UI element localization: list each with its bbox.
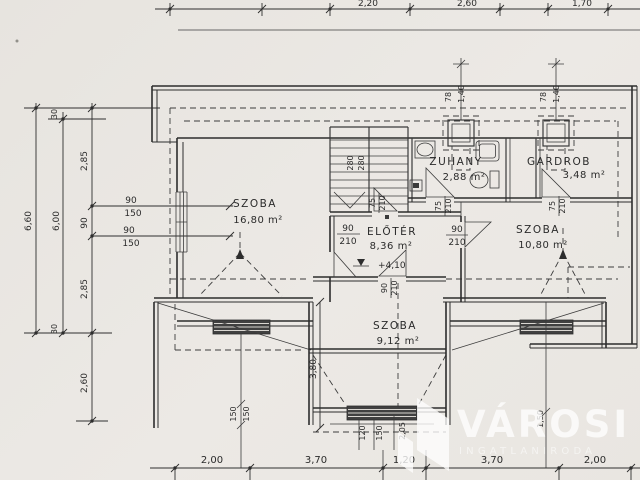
room-name-szoba-ne: SZOBA [516,224,560,236]
room-name-gardrob: GARDROB [527,156,591,168]
door-landing-height: 210 [378,195,387,210]
left-segment2-dim: 2,85 [80,279,90,299]
room-name-zuhany: ZUHANY [429,156,482,168]
south-window-right [520,320,573,334]
door-landing-width: 75 [368,198,377,208]
floor-plan-scan: 2,20 2,60 1,70 78 1,40 78 1,40 6,60 6,00… [0,0,640,480]
room-name-szoba-s: SZOBA [373,320,417,332]
bay-window-dim2: 150 [375,425,384,440]
chimney2-height-label: 1,40 [552,85,561,103]
room-area-gardrob: 3,48 m² [563,170,606,181]
sink-basin [417,143,433,156]
door-east-height: 210 [448,238,465,248]
chimney2-width-label: 78 [539,92,548,102]
left-inner-dim: 6,00 [52,211,62,231]
west-window1-width: 90 [125,196,137,206]
top-dimension-line: 2,20 2,60 1,70 [155,0,640,30]
chimney1-width-label: 78 [444,92,453,102]
room-name-eloter: ELŐTÉR [367,224,417,238]
left-dim-ticks [32,104,234,425]
threshold-mark [385,215,389,219]
left-middle-dim: 90 [80,217,90,229]
top-dim-ticks [166,3,612,16]
watermark-title: VÁROSI [457,402,630,446]
room-labels: SZOBA 16,80 m² ZUHANY 2,88 m² GARDROB 3,… [233,156,605,347]
slope-arrowhead-left [236,249,244,259]
left-below-dim: 2,60 [80,373,90,393]
bottom-dim-2: 3,70 [305,455,327,466]
toilet-cistern [490,171,499,188]
bottom-dim-1: 2,00 [201,455,223,466]
room-name-szoba-nw: SZOBA [233,198,277,210]
left-offset-bottom-dim: 30 [50,324,59,334]
door-zuhany-width: 75 [434,201,443,211]
bay-window-dim1: 120 [358,425,367,440]
hall-east-door-leaf [465,222,491,247]
room-area-zuhany: 2,88 m² [443,172,486,183]
chimney1-height-label: 1,40 [457,85,466,103]
room-area-szoba-s: 9,12 m² [377,336,420,347]
floor-plan-drawing: 2,20 2,60 1,70 78 1,40 78 1,40 6,60 6,00… [0,0,640,480]
stair-dim-b: 280 [357,155,366,170]
scan-speck [16,40,19,43]
door-zuhany-height: 210 [444,198,453,213]
bay-depth-dim: 3,80 [309,359,319,379]
watermark-subtitle: INGATLANIRODA [459,446,596,457]
west-window1-height: 150 [124,209,141,219]
level-marker-value: +4,10 [378,261,406,271]
west-window2-height: 150 [122,239,139,249]
south-window-left-dim1: 150 [229,406,238,421]
room-area-szoba-nw: 16,80 m² [233,215,283,226]
room-area-eloter: 8,36 m² [370,241,413,252]
west-window2-width: 90 [123,226,135,236]
stair-dim-a: 280 [346,155,355,170]
top-dim-fragment-3: 1,70 [572,0,592,9]
door-east-width: 90 [451,225,463,235]
top-dim-fragment-2: 2,60 [457,0,477,9]
level-marker-symbol [353,259,369,266]
door-south-height: 210 [390,280,399,295]
interior-walls [313,116,632,302]
left-segment1-dim: 2,85 [80,151,90,171]
top-dim-fragment-1: 2,20 [358,0,378,9]
south-window-left [213,320,270,334]
stair-direction-arrow [334,192,365,208]
hall-west-door-leaf [334,252,356,277]
washer-box-inner [413,183,419,188]
door-south-width: 90 [380,283,389,293]
left-offset-top-dim: 30 [50,109,59,119]
left-total-dim: 6,60 [24,211,34,231]
bay-window [347,406,417,420]
door-west-width: 90 [342,224,354,234]
door-gardrob-width: 75 [548,201,557,211]
chimney-dimensions: 78 1,40 78 1,40 [444,58,564,120]
west-window [176,192,187,252]
south-window-left-dim2: 150 [242,406,251,421]
left-dimension-chain: 6,60 6,00 30 2,85 90 2,85 30 2,60 90 150… [24,103,234,425]
door-gardrob-height: 210 [558,198,567,213]
door-west-height: 210 [339,237,356,247]
room-area-szoba-ne: 10,80 m² [518,240,568,251]
